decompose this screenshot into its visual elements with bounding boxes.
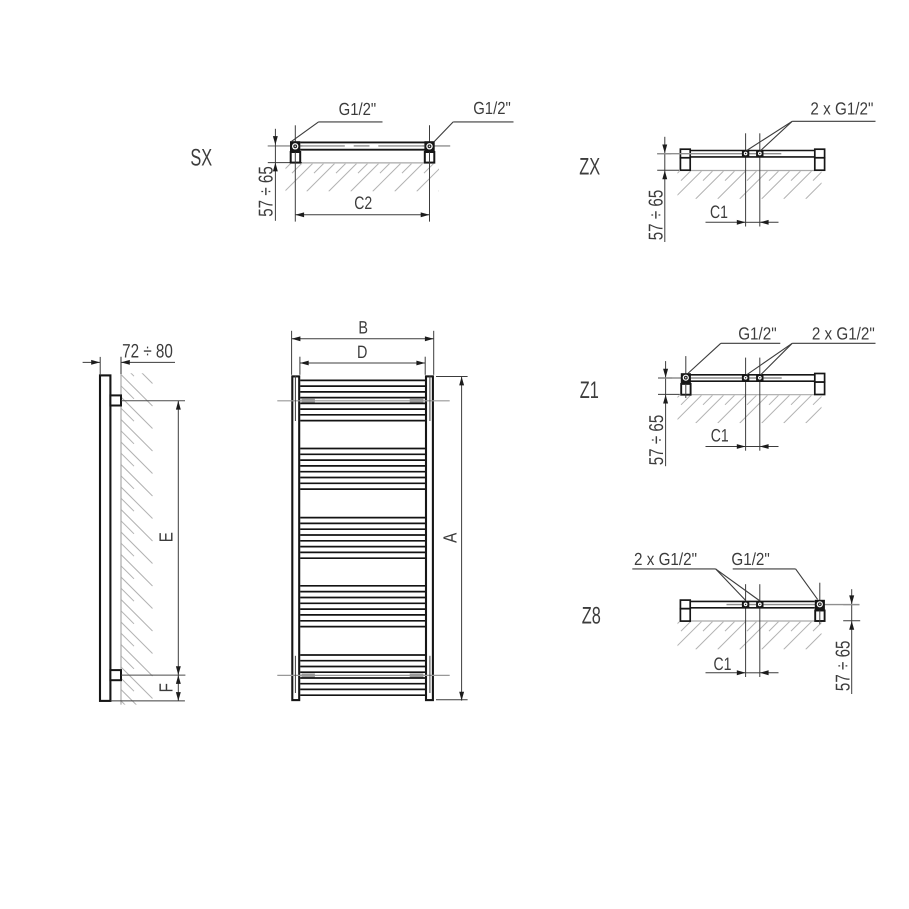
- svg-text:2 x G1/2": 2 x G1/2": [634, 549, 697, 569]
- svg-text:Z8: Z8: [582, 603, 601, 630]
- svg-text:SX: SX: [190, 144, 212, 171]
- svg-text:C1: C1: [714, 654, 732, 674]
- svg-text:57 ÷ 65: 57 ÷ 65: [646, 415, 668, 466]
- svg-text:57 ÷ 65: 57 ÷ 65: [645, 190, 667, 241]
- svg-text:72 ÷ 80: 72 ÷ 80: [122, 341, 173, 363]
- svg-text:G1/2": G1/2": [738, 324, 776, 344]
- svg-text:57 ÷ 65: 57 ÷ 65: [832, 640, 854, 691]
- svg-text:2 x G1/2": 2 x G1/2": [812, 324, 875, 344]
- svg-text:C2: C2: [354, 193, 372, 213]
- svg-text:G1/2": G1/2": [731, 549, 769, 569]
- svg-text:57 ÷ 65: 57 ÷ 65: [256, 166, 278, 217]
- svg-text:2 x G1/2": 2 x G1/2": [810, 99, 873, 119]
- svg-text:G1/2": G1/2": [473, 98, 511, 118]
- svg-text:F: F: [156, 683, 177, 692]
- svg-text:C1: C1: [711, 426, 729, 446]
- svg-text:D: D: [357, 342, 367, 362]
- svg-text:ZX: ZX: [579, 154, 600, 181]
- svg-text:E: E: [156, 532, 177, 542]
- svg-text:Z1: Z1: [580, 377, 599, 404]
- svg-text:C1: C1: [710, 202, 728, 222]
- svg-text:G1/2": G1/2": [339, 99, 377, 119]
- svg-text:B: B: [358, 318, 368, 338]
- svg-text:A: A: [441, 532, 462, 542]
